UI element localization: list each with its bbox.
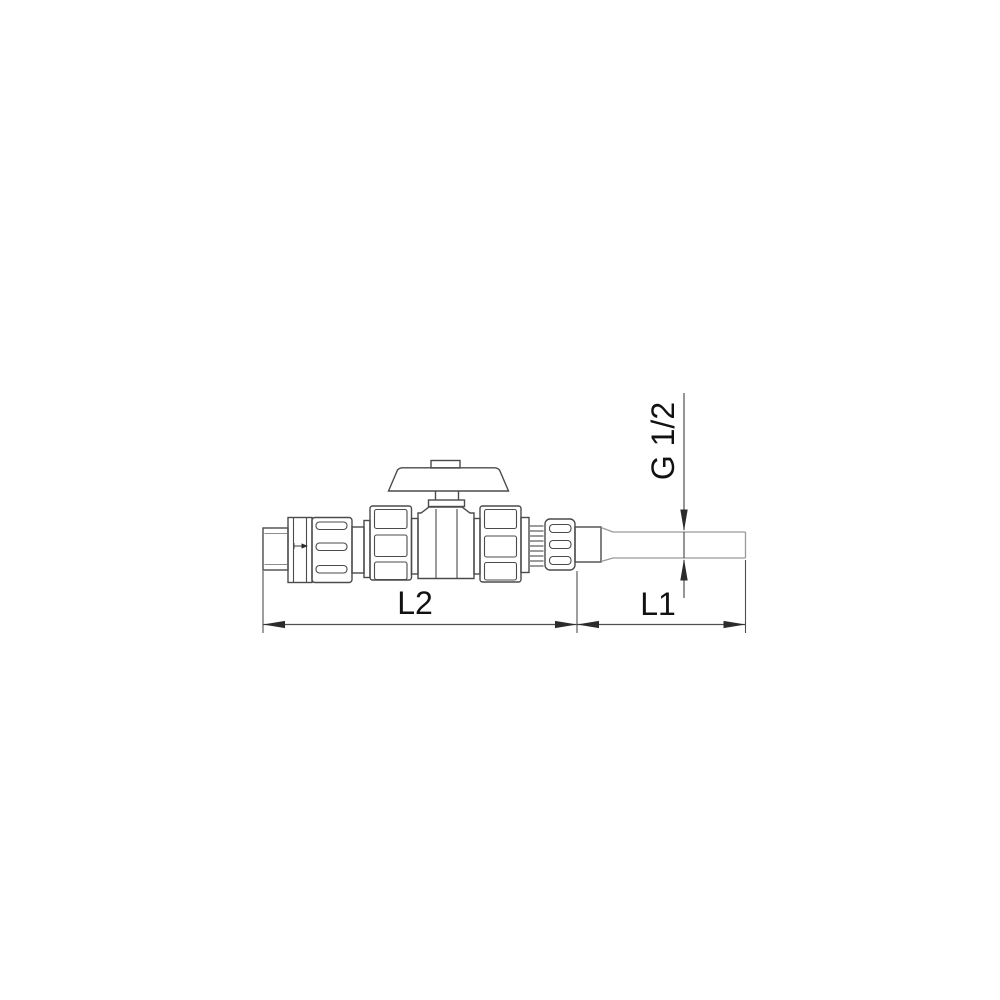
union-nut-left (370, 506, 412, 580)
thread-size-label: G 1/2 (645, 402, 681, 480)
spacer-sleeve (352, 521, 370, 578)
pipe-stub (575, 527, 601, 562)
stem-collar (429, 500, 465, 507)
dimension-l1: L1 (577, 586, 746, 628)
dimension-l2: L2 (263, 585, 577, 628)
grooved-cap-nut (312, 518, 352, 583)
thread-serration (530, 526, 544, 566)
connection-pipe (575, 527, 746, 562)
dimension-g12: G 1/2 (645, 393, 688, 598)
knurled-nut (545, 519, 575, 570)
valve-body (412, 507, 481, 579)
union-nut-right (480, 506, 529, 582)
valve-handle (389, 461, 509, 507)
dim-arrow-right (555, 621, 577, 628)
dim-arrow-left (263, 621, 285, 628)
check-valve-body (288, 518, 312, 583)
dim-arrow-right (724, 621, 746, 628)
dim-arrow-left (577, 621, 599, 628)
dim-arrow-up (680, 559, 687, 581)
dimension-label-l2: L2 (397, 585, 433, 621)
drawing-canvas: L2 L1 G 1/2 (0, 0, 1000, 1000)
flow-direction-arrow-icon (294, 543, 308, 549)
valve-technical-drawing: L2 L1 G 1/2 (0, 0, 1000, 1000)
dimension-label-l1: L1 (640, 586, 676, 622)
handle-knob (431, 461, 460, 469)
male-thread-end (263, 528, 288, 570)
handle-wing (389, 468, 509, 491)
dim-arrow-down (680, 510, 687, 532)
